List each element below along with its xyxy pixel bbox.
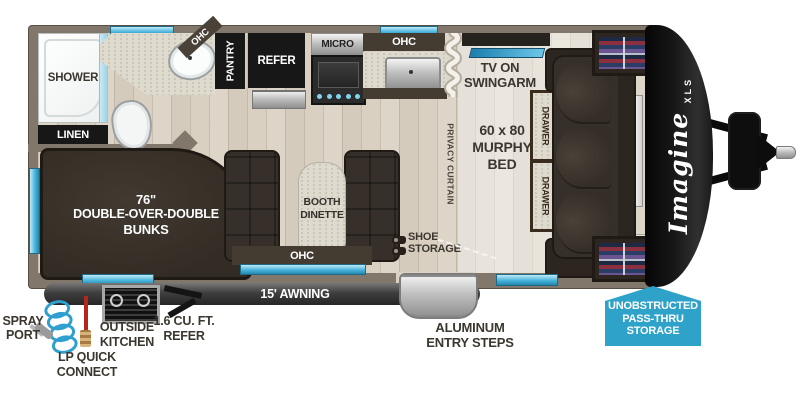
bunks-line1: 76" [73,192,219,207]
passthru-storage-sign: UNOBSTRUCTED PASS-THRU STORAGE [605,286,701,346]
tv-label-line2: SWINGARM [446,75,554,90]
dinette-ohc-cabinet: OHC [232,246,372,265]
shoe-storage-icons [392,236,406,255]
shower-label: SHOWER [48,72,99,84]
microwave: MICRO [311,33,364,56]
burner-knobs [317,94,360,100]
shoe-icon [392,236,406,244]
brand-sub: XLS [684,76,694,103]
passthru-line2: PASS-THRU [605,313,701,326]
kitchen-base-cabinet [363,88,447,99]
hanging-clothes-icon [599,243,647,275]
shoe-line1: SHOE [408,231,468,243]
refrigerator: REFER [248,33,305,88]
booth-line1: BOOTH [300,196,344,209]
spray-port-hose-icon [43,298,80,356]
entry-steps-label: ALUMINUM ENTRY STEPS [414,320,526,350]
sofa [552,55,636,259]
kitchen-ohc-cabinet: OHC [363,33,445,51]
awning-label-box: 15' AWNING [240,285,350,303]
bunks-line3: BUNKS [73,222,219,237]
lp-line1: LP QUICK [48,350,126,365]
booth-label: BOOTH DINETTE [300,196,344,222]
orefer-line1: 1.6 CU. FT. [148,314,220,329]
tv-cabinet [462,33,550,46]
passthru-label: UNOBSTRUCTED PASS-THRU STORAGE [605,300,701,338]
shower: SHOWER [38,33,108,123]
kitchen-ohc-label: OHC [392,36,416,48]
sofa-cushion [556,126,612,189]
refer-label: REFER [258,55,296,67]
kitchen-faucet-dot [409,70,413,74]
lp-line2: CONNECT [48,365,126,380]
passthru-line3: STORAGE [605,325,701,338]
dinette-window [240,264,366,275]
floor-plan: SHOWER LINEN OHC PANTRY REFER MICRO OHC … [0,0,800,400]
tv-label: TV ON SWINGARM [446,60,554,90]
micro-label: MICRO [321,39,353,50]
shoe-icon [392,247,406,255]
passthru-line1: UNOBSTRUCTED [605,300,701,313]
bunks-line2: DOUBLE-OVER-DOUBLE [73,207,219,222]
dinette-ohc-label: OHC [290,250,314,262]
shoe-storage-label: SHOE STORAGE [408,231,468,255]
awning-label: 15' AWNING [260,287,329,301]
refer-drawer [252,90,306,109]
drawer-bottom-label: DRAWER [541,177,551,216]
range-oven-icon [311,55,366,105]
bunks-label: 76" DOUBLE-OVER-DOUBLE BUNKS [73,192,219,237]
oven-door [318,62,359,88]
linen-label: LINEN [57,129,89,141]
hanging-clothes-icon [599,37,647,69]
dinette-table: BOOTH DINETTE [298,162,346,256]
bunk-beds: 76" DOUBLE-OVER-DOUBLE BUNKS [40,148,252,280]
lp-hose-icon [84,296,88,332]
drawer-top-label: DRAWER [541,107,551,146]
entry-side-window [496,274,558,286]
sofa-backrest [618,57,634,257]
spray-line1: SPRAY [0,314,46,328]
kitchen-sink-icon [385,57,441,91]
tv-label-line1: TV ON [446,60,554,75]
steps-line1: ALUMINUM [414,320,526,335]
entry-steps-icon [399,273,478,319]
steps-line2: ENTRY STEPS [414,335,526,350]
brand-logo: Imagine XLS [645,60,713,250]
tv-screen-icon [469,48,545,58]
left-wall-window [29,168,40,254]
hitch-ball-mount-icon [776,146,796,159]
outside-refer-label: 1.6 CU. FT. REFER [148,314,220,344]
booth-line2: DINETTE [300,209,344,222]
linen-cabinet: LINEN [38,125,108,144]
lp-connector-icon [80,330,91,347]
pantry: PANTRY [215,33,245,89]
brand-name: Imagine [665,111,694,233]
spray-line2: PORT [0,328,46,342]
spray-port-label: SPRAY PORT [0,314,46,342]
pantry-label: PANTRY [224,41,236,82]
lp-quick-connect-label: LP QUICK CONNECT [48,350,126,380]
orefer-line2: REFER [148,329,220,344]
